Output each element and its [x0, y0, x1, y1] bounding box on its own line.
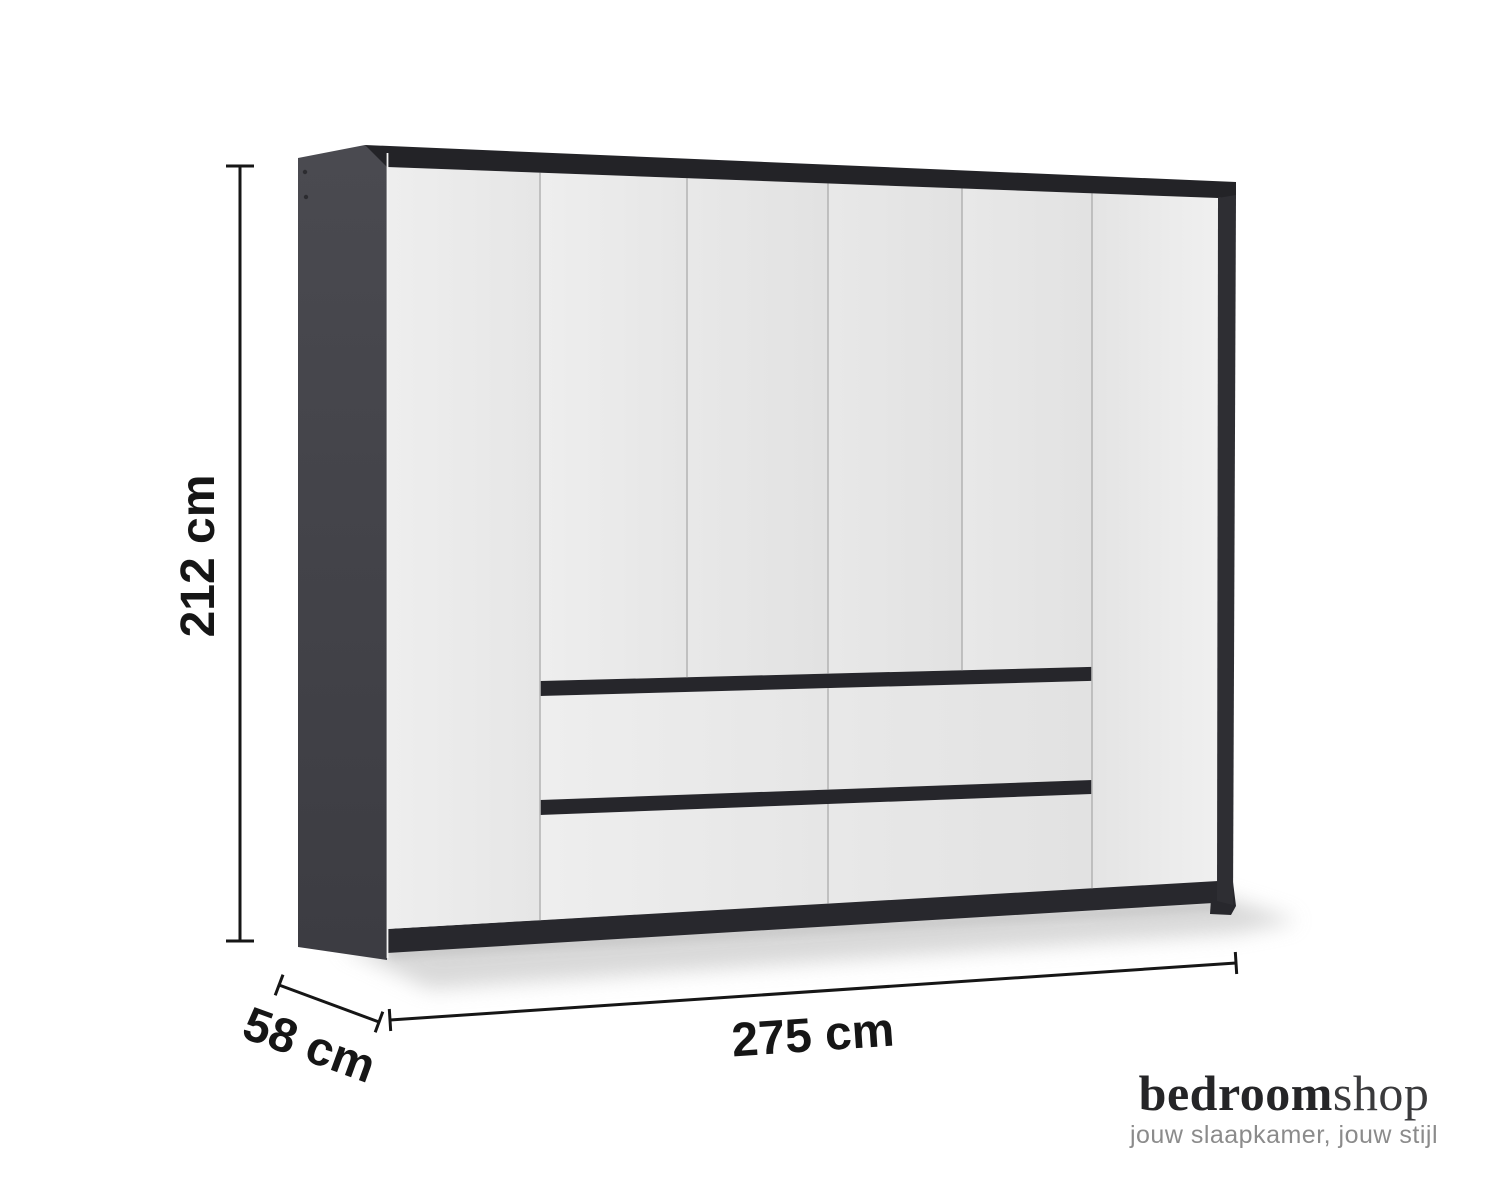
- shelf-pin-hole: [304, 195, 308, 199]
- width-dimension-label: 275 cm: [730, 1007, 896, 1066]
- product-dimension-diagram: 212 cm 58 cm 275 cm bedroomshop jouw sla…: [0, 0, 1500, 1200]
- drawer-front-bottom-left: [540, 804, 828, 920]
- drawer-front-top-right: [828, 681, 1092, 790]
- wardrobe-door-5: [962, 188, 1092, 670]
- wardrobe-door-6: [1092, 193, 1218, 888]
- drawer-front-top-left: [540, 688, 828, 800]
- wardrobe-side-panel: [298, 145, 387, 960]
- brand-name: bedroomshop: [1128, 1068, 1440, 1118]
- height-dimension-label: 212 cm: [175, 475, 223, 638]
- wardrobe-right-frame: [1217, 195, 1236, 905]
- drawer-front-bottom-right: [828, 794, 1092, 904]
- wardrobe-door-4: [828, 183, 962, 673]
- brand-tagline: jouw slaapkamer, jouw stijl: [1128, 1121, 1440, 1150]
- height-dimension-line: [226, 166, 254, 941]
- shelf-pin-hole: [303, 170, 307, 174]
- wardrobe-door-2: [540, 173, 687, 681]
- brand-name-light: shop: [1333, 1065, 1429, 1121]
- wardrobe-door-3: [687, 178, 828, 677]
- wardrobe-door-1: [387, 167, 540, 929]
- brand-name-bold: bedroom: [1139, 1065, 1333, 1121]
- brand-logo: bedroomshop jouw slaapkamer, jouw stijl: [1128, 1068, 1440, 1150]
